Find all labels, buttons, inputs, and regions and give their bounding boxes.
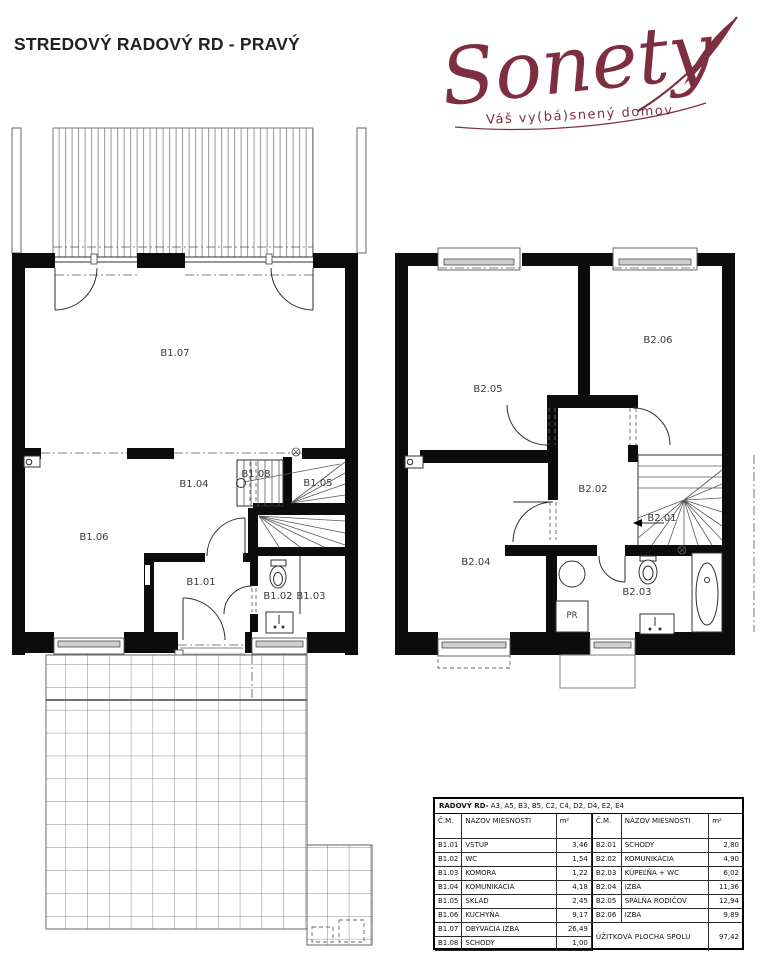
pergola (12, 128, 366, 257)
room-id: B2.02 (592, 852, 621, 866)
area-table: RADOVÝ RD- A3, A5, B3, B5, C2, C4, D2, D… (433, 797, 744, 950)
room-name: SCHODY (621, 838, 709, 852)
room-area: 1,54 (556, 852, 591, 866)
room-id: B2.01 (592, 838, 621, 852)
room-area: 3,46 (556, 838, 591, 852)
room-id: B1.01 (435, 838, 462, 852)
total-value: 97,42 (709, 922, 742, 950)
room-area: 2,45 (556, 894, 591, 908)
col-header-m2: m² (556, 814, 591, 838)
room-name: SCHODY (462, 936, 556, 950)
room-id: B1.05 (435, 894, 462, 908)
room-area: 4,18 (556, 880, 591, 894)
upper-area-table: Č.M. NÁZOV MIESNOSTI m² B2.01 SCHODY 2,8… (592, 814, 742, 951)
table-row: B1.07 OBÝVACIA IZBA 26,49 (435, 922, 591, 936)
table-row: B2.01 SCHODY 2,80 (592, 838, 742, 852)
table-row: B1.02 WC 1,54 (435, 852, 591, 866)
room-label-b204: B2.04 (461, 557, 490, 568)
room-label-b107: B1.07 (160, 348, 189, 359)
room-name: KOMUNIKÁCIA (462, 880, 556, 894)
room-name: KOMUNIKÁCIA (621, 852, 709, 866)
col-header-cm: Č.M. (435, 814, 462, 838)
room-label-b201: B2.01 (647, 513, 676, 524)
table-row: B2.03 KÚPEĽŇA + WC 6,02 (592, 866, 742, 880)
col-header-m2: m² (709, 814, 742, 838)
room-area: 9,17 (556, 908, 591, 922)
room-area: 2,80 (709, 838, 742, 852)
room-label-b105: B1.05 (303, 478, 332, 489)
room-label-b108: B1.08 (241, 469, 270, 480)
table-header-row: Č.M. NÁZOV MIESNOSTI m² (435, 814, 591, 838)
upper-sink-icon (640, 614, 674, 634)
room-name: WC (462, 852, 556, 866)
room-name: KOMORA (462, 866, 556, 880)
wc-toilet-icon (270, 560, 286, 588)
upper-walls (395, 253, 735, 655)
area-table-title: RADOVÝ RD- A3, A5, B3, B5, C2, C4, D2, D… (435, 799, 742, 814)
room-area: 1,00 (556, 936, 591, 950)
col-header-name: NÁZOV MIESNOSTI (462, 814, 556, 838)
col-header-name: NÁZOV MIESNOSTI (621, 814, 709, 838)
room-label-pr: PR (566, 611, 577, 621)
table-row: B2.06 IZBA 9,89 (592, 908, 742, 922)
room-label-b101: B1.01 (186, 577, 215, 588)
ground-radiator (24, 456, 40, 467)
room-id: B1.03 (435, 866, 462, 880)
room-label-b206: B2.06 (643, 335, 672, 346)
room-area: 11,36 (709, 880, 742, 894)
room-area: 9,89 (709, 908, 742, 922)
room-id: B2.06 (592, 908, 621, 922)
room-area: 26,49 (556, 922, 591, 936)
room-name: IZBA (621, 880, 709, 894)
table-row: B2.04 IZBA 11,36 (592, 880, 742, 894)
table-row: B1.03 KOMORA 1,22 (435, 866, 591, 880)
room-label-b202: B2.02 (578, 484, 607, 495)
room-name: SKLAD (462, 894, 556, 908)
room-id: B1.08 (435, 936, 462, 950)
room-label-b103: B1.03 (296, 591, 325, 602)
room-name: OBÝVACIA IZBA (462, 922, 556, 936)
room-label-b102: B1.02 (263, 591, 292, 602)
room-label-b203: B2.03 (622, 587, 651, 598)
table-header-row: Č.M. NÁZOV MIESNOSTI m² (592, 814, 742, 838)
table-row: B1.06 KUCHYŇA 9,17 (435, 908, 591, 922)
room-name: VSTUP (462, 838, 556, 852)
total-row: ÚŽITKOVÁ PLOCHA SPOLU 97,42 (592, 922, 742, 950)
bathtub-icon (692, 553, 722, 632)
room-id: B2.05 (592, 894, 621, 908)
room-label-b106: B1.06 (79, 532, 108, 543)
balcony-stub (560, 655, 635, 688)
area-table-title-prefix: RADOVÝ RD- (439, 802, 489, 810)
room-id: B1.02 (435, 852, 462, 866)
room-name: KUCHYŇA (462, 908, 556, 922)
room-id: B2.03 (592, 866, 621, 880)
table-row: B1.04 KOMUNIKÁCIA 4,18 (435, 880, 591, 894)
room-id: B2.04 (592, 880, 621, 894)
room-name: KÚPEĽŇA + WC (621, 866, 709, 880)
room-label-b205: B2.05 (473, 384, 502, 395)
upper-toilet-icon (639, 556, 657, 584)
upper-radiator (405, 456, 423, 468)
washing-machine-icon (559, 561, 585, 587)
col-header-cm: Č.M. (592, 814, 621, 838)
room-label-b104: B1.04 (179, 479, 208, 490)
room-name: IZBA (621, 908, 709, 922)
room-area: 4,90 (709, 852, 742, 866)
ground-area-table: Č.M. NÁZOV MIESNOSTI m² B1.01 VSTUP 3,46… (435, 814, 592, 951)
table-row: B1.01 VSTUP 3,46 (435, 838, 591, 852)
room-id: B1.04 (435, 880, 462, 894)
table-row: B1.05 SKLAD 2,45 (435, 894, 591, 908)
total-label: ÚŽITKOVÁ PLOCHA SPOLU (592, 922, 708, 950)
ground-room-labels: B1.07 B1.04 B1.08 B1.05 B1.06 B1.01 B1.0… (79, 348, 332, 602)
floorplan-sheet: STREDOVÝ RADOVÝ RD - PRAVÝ Sonety Váš vy… (0, 0, 768, 963)
table-row: B1.08 SCHODY 1,00 (435, 936, 591, 950)
room-area: 6,02 (709, 866, 742, 880)
room-name: SPÁLŇA RODIČOV (621, 894, 709, 908)
room-area: 12,94 (709, 894, 742, 908)
table-row: B2.05 SPÁLŇA RODIČOV 12,94 (592, 894, 742, 908)
ground-sink-icon (266, 612, 293, 633)
room-id: B1.06 (435, 908, 462, 922)
ground-floor-plan: B1.07 B1.04 B1.08 B1.05 B1.06 B1.01 B1.0… (12, 128, 372, 945)
upper-floor-plan: B2.05 B2.06 B2.02 B2.01 B2.04 B2.03 PR (395, 248, 754, 688)
upper-staircase (633, 455, 722, 545)
table-row: B2.02 KOMUNIKÁCIA 4,90 (592, 852, 742, 866)
area-table-title-units: A3, A5, B3, B5, C2, C4, D2, D4, E2, E4 (489, 802, 624, 810)
room-id: B1.07 (435, 922, 462, 936)
floor-drain-icon (292, 448, 300, 456)
room-area: 1,22 (556, 866, 591, 880)
terrace (46, 655, 372, 945)
